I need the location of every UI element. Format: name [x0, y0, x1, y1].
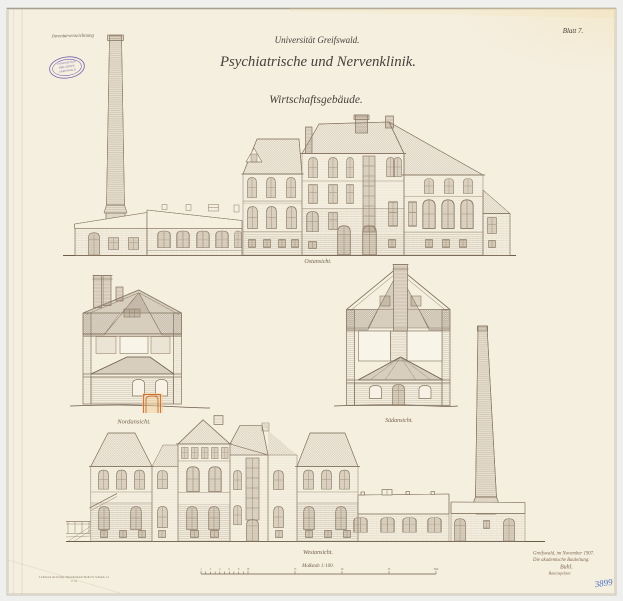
svg-text:Ostansicht.: Ostansicht. — [304, 259, 331, 265]
svg-text:Greifswald, im November 1907.: Greifswald, im November 1907. — [533, 552, 594, 557]
svg-text:Maßstab 1:100.: Maßstab 1:100. — [301, 564, 334, 569]
svg-text:Nordansicht.: Nordansicht. — [116, 419, 151, 426]
svg-text:30m: 30m — [434, 568, 439, 571]
svg-text:Psychiatrische und Nervenklini: Psychiatrische und Nervenklinik. — [219, 54, 416, 70]
svg-text:T. 32: T. 32 — [71, 580, 77, 583]
svg-text:Universität Greifswald.: Universität Greifswald. — [275, 35, 360, 45]
svg-text:Lichtdruck der Königl. Messbil: Lichtdruck der Königl. Messbildanstalt B… — [39, 576, 110, 579]
svg-text:Inventarverzeichnung: Inventarverzeichnung — [51, 34, 95, 40]
svg-text:Westansicht.: Westansicht. — [303, 550, 333, 556]
svg-text:Die akademische Bauleitung:: Die akademische Bauleitung: — [532, 558, 590, 563]
svg-text:Südansicht.: Südansicht. — [385, 418, 413, 424]
svg-text:Bauinspektor.: Bauinspektor. — [549, 571, 572, 576]
svg-text:Wirtschaftsgebäude.: Wirtschaftsgebäude. — [269, 94, 363, 106]
svg-text:Blatt 7.: Blatt 7. — [563, 27, 584, 35]
